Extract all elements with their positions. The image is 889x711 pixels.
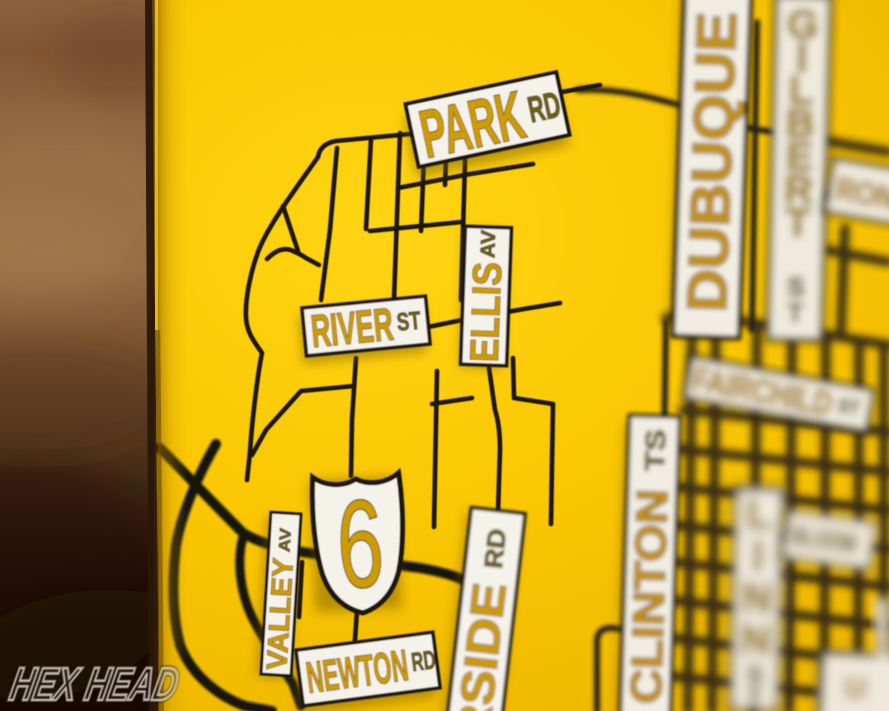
svg-text:N: N xyxy=(740,616,772,664)
svg-text:AV: AV xyxy=(477,229,500,258)
svg-text:AV: AV xyxy=(277,527,295,552)
svg-text:T: T xyxy=(785,201,811,246)
svg-text:6: 6 xyxy=(334,475,387,615)
svg-text:CLINTON: CLINTON xyxy=(622,488,678,704)
svg-text:HEX HEAD: HEX HEAD xyxy=(6,658,183,709)
svg-text:T: T xyxy=(746,684,763,711)
svg-text:DUBUQUE: DUBUQUE xyxy=(675,11,748,313)
svg-text:RIVER: RIVER xyxy=(309,299,396,358)
svg-text:RD: RD xyxy=(410,644,438,677)
svg-text:T: T xyxy=(787,298,805,328)
svg-text:ELLIS: ELLIS xyxy=(463,261,510,362)
svg-text:L: L xyxy=(746,490,773,538)
svg-text:N: N xyxy=(741,574,773,622)
svg-text:ST: ST xyxy=(836,395,862,421)
svg-text:I: I xyxy=(752,532,765,579)
svg-text:VALLEY: VALLEY xyxy=(261,557,300,671)
svg-text:RD: RD xyxy=(480,527,512,570)
svg-text:TS: TS xyxy=(639,429,671,472)
svg-text:U: U xyxy=(844,671,867,705)
svg-text:ST: ST xyxy=(396,307,423,337)
